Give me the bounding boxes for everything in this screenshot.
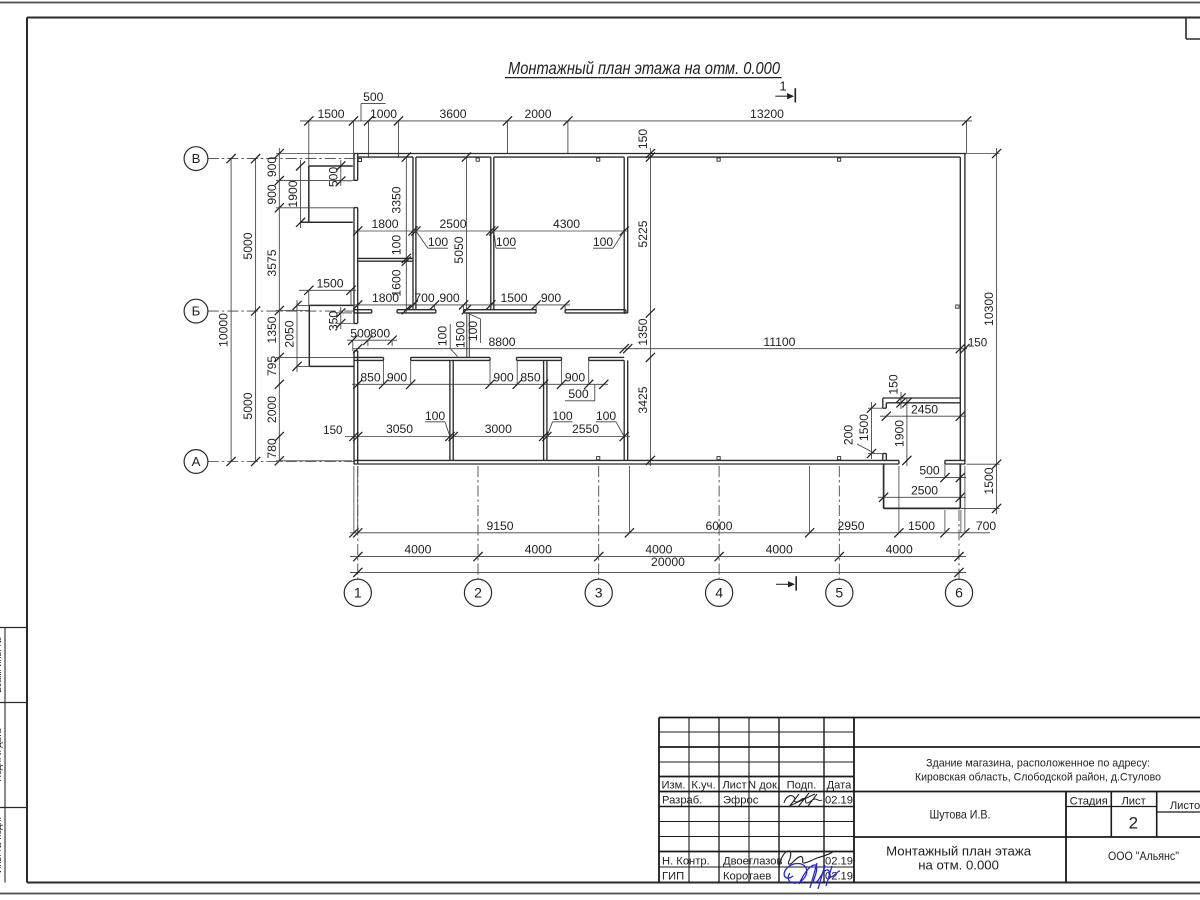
svg-text:3050: 3050 xyxy=(386,422,413,436)
svg-text:11100: 11100 xyxy=(763,335,795,349)
svg-text:1900: 1900 xyxy=(286,180,300,207)
svg-text:5000: 5000 xyxy=(241,392,255,419)
svg-text:150: 150 xyxy=(636,129,650,150)
svg-text:Разраб.: Разраб. xyxy=(662,795,702,807)
svg-text:2000: 2000 xyxy=(524,107,551,121)
svg-text:1500: 1500 xyxy=(317,107,344,121)
svg-text:700: 700 xyxy=(414,291,435,305)
svg-text:4300: 4300 xyxy=(553,217,580,231)
svg-text:4000: 4000 xyxy=(766,543,793,557)
svg-text:1350: 1350 xyxy=(636,318,650,345)
svg-text:13200: 13200 xyxy=(750,107,784,121)
svg-text:Лист: Лист xyxy=(1121,796,1145,808)
svg-text:5: 5 xyxy=(835,585,843,601)
svg-text:900: 900 xyxy=(541,291,562,305)
svg-text:100: 100 xyxy=(436,326,450,347)
svg-text:150: 150 xyxy=(887,374,901,395)
svg-text:5225: 5225 xyxy=(636,220,650,247)
svg-text:3000: 3000 xyxy=(485,422,512,436)
svg-text:900: 900 xyxy=(439,291,460,305)
svg-text:3: 3 xyxy=(595,585,603,601)
svg-text:Лист: Лист xyxy=(722,779,746,791)
svg-text:Б: Б xyxy=(192,304,201,319)
svg-text:2: 2 xyxy=(1129,814,1138,833)
svg-text:В: В xyxy=(192,151,201,166)
svg-text:1900: 1900 xyxy=(892,420,906,447)
svg-text:4000: 4000 xyxy=(525,543,552,557)
svg-text:795: 795 xyxy=(265,356,279,377)
svg-text:02.19: 02.19 xyxy=(825,795,853,807)
svg-text:1800: 1800 xyxy=(371,217,398,231)
svg-text:100: 100 xyxy=(596,409,617,423)
svg-text:Шутова И.В.: Шутова И.В. xyxy=(930,808,991,822)
svg-text:2050: 2050 xyxy=(283,320,297,347)
svg-text:2000: 2000 xyxy=(265,396,279,423)
svg-text:N док.: N док. xyxy=(748,779,780,791)
svg-text:Монтажный план этажа на отм. 0: Монтажный план этажа на отм. 0.000 xyxy=(508,58,780,78)
svg-text:1500: 1500 xyxy=(857,414,871,441)
svg-text:02.19: 02.19 xyxy=(825,855,853,867)
svg-text:500: 500 xyxy=(919,464,940,478)
svg-text:900: 900 xyxy=(565,370,586,384)
svg-text:1500: 1500 xyxy=(316,276,343,290)
svg-text:1500: 1500 xyxy=(500,291,527,305)
svg-text:2950: 2950 xyxy=(837,519,864,533)
svg-text:1: 1 xyxy=(354,585,362,601)
svg-text:Н. Контр.: Н. Контр. xyxy=(662,855,710,867)
svg-text:4000: 4000 xyxy=(404,543,431,557)
svg-text:2450: 2450 xyxy=(911,402,938,416)
svg-text:500: 500 xyxy=(326,167,340,188)
svg-text:100: 100 xyxy=(466,321,480,342)
svg-text:150: 150 xyxy=(323,424,342,437)
svg-text:2550: 2550 xyxy=(572,422,599,436)
svg-text:Эфрос: Эфрос xyxy=(723,795,759,807)
svg-text:Подп.: Подп. xyxy=(787,779,817,791)
svg-text:А: А xyxy=(192,454,201,469)
svg-text:9150: 9150 xyxy=(486,519,513,533)
svg-text:Коротаев: Коротаев xyxy=(723,870,771,882)
svg-text:Взам. инв. №: Взам. инв. № xyxy=(0,637,3,693)
svg-text:2500: 2500 xyxy=(439,217,466,231)
svg-text:4: 4 xyxy=(715,585,723,601)
svg-text:3575: 3575 xyxy=(265,249,279,276)
svg-text:Подп. и дата: Подп. и дата xyxy=(0,728,3,781)
svg-text:350: 350 xyxy=(326,311,340,332)
svg-text:100: 100 xyxy=(425,409,446,423)
svg-text:100: 100 xyxy=(428,235,449,249)
svg-text:Изм.: Изм. xyxy=(662,779,686,791)
svg-text:2: 2 xyxy=(474,585,482,601)
svg-text:6000: 6000 xyxy=(705,519,732,533)
svg-text:3350: 3350 xyxy=(389,186,403,213)
svg-text:5000: 5000 xyxy=(241,232,255,259)
svg-text:500: 500 xyxy=(568,387,589,401)
svg-text:1000: 1000 xyxy=(370,107,397,121)
svg-text:К.уч.: К.уч. xyxy=(691,779,715,791)
svg-text:1800: 1800 xyxy=(372,291,399,305)
svg-text:850: 850 xyxy=(520,370,541,384)
svg-text:900: 900 xyxy=(493,370,514,384)
svg-text:ООО "Альянс": ООО "Альянс" xyxy=(1108,849,1179,863)
svg-text:Здание магазина, расположенное: Здание магазина, расположенное по адресу… xyxy=(926,758,1150,770)
svg-text:1: 1 xyxy=(779,79,786,94)
svg-text:1500: 1500 xyxy=(908,519,935,533)
svg-text:100: 100 xyxy=(389,235,403,256)
svg-text:900: 900 xyxy=(265,157,279,178)
svg-text:6: 6 xyxy=(955,585,963,601)
svg-text:780: 780 xyxy=(265,438,279,459)
svg-text:2500: 2500 xyxy=(911,483,938,497)
svg-text:800: 800 xyxy=(370,326,391,340)
svg-text:4000: 4000 xyxy=(886,543,913,557)
svg-text:900: 900 xyxy=(265,184,279,205)
svg-text:Стадия: Стадия xyxy=(1070,796,1108,808)
svg-text:10300: 10300 xyxy=(982,292,996,326)
svg-text:10000: 10000 xyxy=(217,313,231,347)
svg-text:900: 900 xyxy=(387,370,408,384)
svg-text:3600: 3600 xyxy=(439,107,466,121)
svg-text:3425: 3425 xyxy=(636,386,650,413)
svg-text:на отм. 0.000: на отм. 0.000 xyxy=(918,857,999,872)
svg-text:Двоеглазов: Двоеглазов xyxy=(723,855,783,867)
svg-text:5050: 5050 xyxy=(452,236,466,263)
svg-text:1350: 1350 xyxy=(265,316,279,343)
svg-text:850: 850 xyxy=(360,370,381,384)
svg-text:Дата: Дата xyxy=(827,779,853,791)
svg-text:500: 500 xyxy=(350,326,371,340)
svg-text:1500: 1500 xyxy=(982,467,996,494)
svg-text:200: 200 xyxy=(841,425,855,446)
svg-text:Кировская область, Слободской: Кировская область, Слободской район, д.С… xyxy=(915,772,1161,784)
svg-text:ГИП: ГИП xyxy=(662,870,684,882)
svg-text:8800: 8800 xyxy=(488,335,515,349)
svg-text:100: 100 xyxy=(496,235,517,249)
svg-text:700: 700 xyxy=(976,519,997,533)
svg-text:150: 150 xyxy=(968,337,987,350)
svg-text:20000: 20000 xyxy=(651,555,685,569)
svg-text:500: 500 xyxy=(363,90,384,104)
svg-text:Листов: Листов xyxy=(1170,800,1200,812)
svg-text:100: 100 xyxy=(552,409,573,423)
svg-text:100: 100 xyxy=(593,235,614,249)
svg-text:Инв. № подл.: Инв. № подл. xyxy=(0,817,3,873)
